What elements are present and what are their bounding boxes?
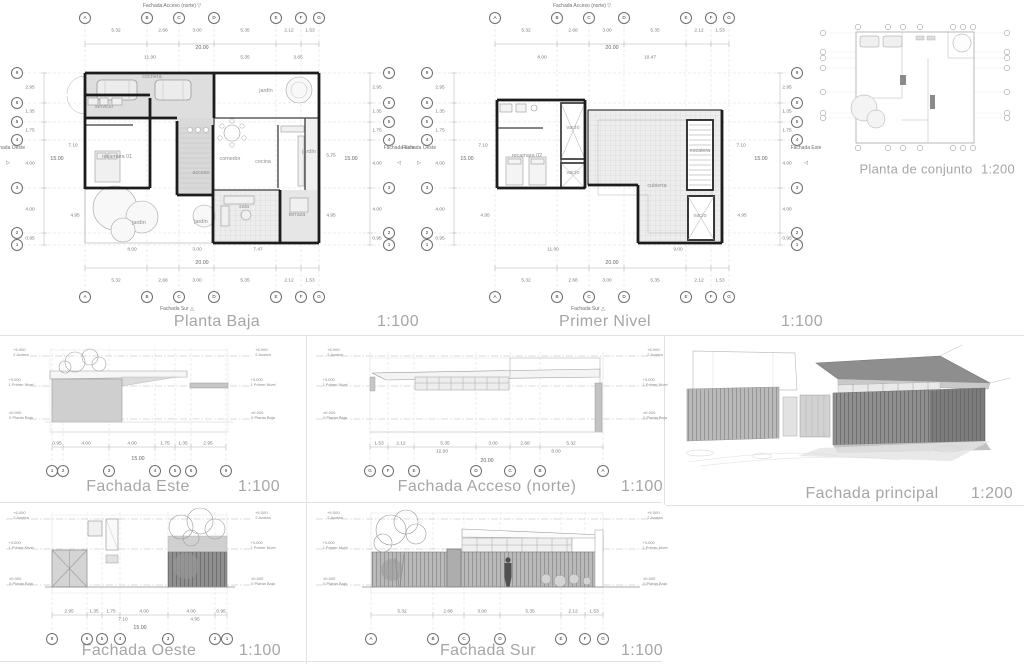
level-name: 1 Primer Nivel — [250, 382, 275, 387]
dimension-label: 1.35 — [178, 442, 187, 447]
grid-bubble: C — [504, 465, 516, 477]
dimension-label: 2.68 — [520, 442, 529, 447]
fachada-principal-render — [686, 345, 1010, 466]
grid-bubble: 1 — [383, 239, 395, 251]
grid-bubble: 5 — [383, 116, 395, 128]
grid-bubble: E — [680, 12, 692, 24]
planta-conjunto-drawing — [820, 24, 1010, 151]
level-label: +6.000 2 Azotea — [647, 510, 663, 520]
dimension-label: 10.47 — [644, 56, 656, 61]
room-label: jardín — [259, 88, 273, 94]
grid-bubble: F — [382, 465, 394, 477]
dimension-label: 4.95 — [190, 618, 199, 623]
level-name: 2 Azotea — [647, 352, 663, 357]
grid-bubble: F — [705, 12, 717, 24]
dimension-label: 8.00 — [551, 450, 560, 455]
level-name: 2 Azotea — [255, 515, 271, 520]
grid-bubble: C — [173, 291, 185, 303]
grid-bubble: A — [489, 291, 501, 303]
grid-bubble: 2 — [791, 227, 803, 239]
level-label: +6.000 2 Azotea — [255, 347, 271, 357]
dimension-label: 1.53 — [305, 279, 314, 284]
level-label: +3.000 1 Primer Nivel — [322, 540, 347, 550]
grid-bubble: 5 — [11, 116, 23, 128]
dimension-label: 3.00 — [602, 29, 611, 34]
level-name: 2 Azotea — [255, 352, 271, 357]
dimension-label: 5.35 — [650, 29, 659, 34]
dimension-label: 5.35 — [650, 279, 659, 284]
planta-conjunto-scale: 1:200 — [981, 162, 1015, 177]
dimension-label: 1.53 — [715, 279, 724, 284]
planta-baja-title: Planta Baja — [174, 313, 260, 331]
level-label: +3.000 1 Primer Nivel — [642, 377, 667, 387]
grid-bubble: 6 — [11, 97, 23, 109]
grid-bubble: C — [173, 12, 185, 24]
dimension-total-label: 15.00 — [133, 625, 146, 631]
dining-table — [224, 125, 240, 141]
dimension-label: 5.35 — [240, 29, 249, 34]
dimension-label: 5.35 — [240, 279, 249, 284]
grid-bubble: D — [470, 465, 482, 477]
level-label: +6.000 2 Azotea — [13, 347, 29, 357]
grid-bubble: 2 — [383, 227, 395, 239]
dimension-total-label: 15.00 — [131, 456, 144, 462]
dimension-label: 4.00 — [435, 208, 444, 213]
facade-marker-vertical: Fachada Este — [791, 145, 822, 151]
dimension-label: 4.95 — [737, 214, 746, 219]
dimension-label: 7.10 — [736, 144, 745, 149]
level-name: 1 Primer Nivel — [642, 382, 667, 387]
dimension-label: 0.95 — [435, 237, 444, 242]
dimension-label: 7.10 — [68, 144, 77, 149]
dimension-total-label: 20.00 — [195, 260, 208, 266]
room-label: jardín — [302, 149, 316, 155]
fachada-sur-scale: 1:100 — [621, 642, 663, 660]
grid-bubble: G — [723, 12, 735, 24]
dimension-label: 1.53 — [305, 29, 314, 34]
facade-marker: Fachada Sur △ — [571, 306, 605, 312]
grid-bubble: A — [365, 633, 377, 645]
dimension-label: 1.75 — [25, 129, 34, 134]
planta-conjunto-title: Planta de conjunto — [859, 162, 972, 177]
dimension-label: 5.32 — [521, 29, 530, 34]
dimension-label: 1.75 — [435, 129, 444, 134]
dimension-label: 3.00 — [192, 248, 201, 253]
dimension-label: 3.65 — [293, 56, 302, 61]
dimension-label: 3.00 — [192, 279, 201, 284]
grid-bubble: B — [141, 12, 153, 24]
grid-bubble: G — [364, 465, 376, 477]
dimension-label: 1.53 — [374, 442, 383, 447]
grid-bubble: B — [551, 12, 563, 24]
facade-marker: ▷ — [6, 160, 10, 166]
grid-bubble: F — [579, 633, 591, 645]
dimension-label: 0.95 — [25, 237, 34, 242]
dimension-label: 4.00 — [372, 208, 381, 213]
fachada-este-scale: 1:100 — [238, 478, 280, 496]
level-label: ±0.000 0 Planta Baja — [9, 410, 33, 420]
dimension-total-label: 20.00 — [605, 45, 618, 51]
grid-bubble: G — [597, 633, 609, 645]
dimension-label: 2.68 — [158, 279, 167, 284]
room-label: escalera — [690, 148, 710, 154]
grid-bubble: 5 — [169, 465, 181, 477]
grid-bubble: B — [534, 465, 546, 477]
level-label: +3.000 1 Primer Nivel — [250, 540, 275, 550]
grid-bubble: 5 — [96, 633, 108, 645]
dimension-label: 1.75 — [106, 610, 115, 615]
room-label: acceso — [192, 170, 209, 176]
dimension-label: 2.12 — [284, 29, 293, 34]
dimension-label: 4.95 — [326, 214, 335, 219]
dimension-label: 1.75 — [782, 129, 791, 134]
dimension-total-label: 20.00 — [480, 458, 493, 464]
fachada-oeste-drawing — [45, 508, 235, 593]
dimension-label: 4.00 — [81, 442, 90, 447]
grid-bubble: 3 — [383, 182, 395, 194]
dimension-label: 4.95 — [480, 214, 489, 219]
room-label: jardín — [194, 219, 208, 225]
dimension-total-label: 15.00 — [460, 156, 473, 162]
dimension-label: 2.68 — [568, 29, 577, 34]
room-label: comedor — [220, 156, 241, 162]
grid-bubble: 4 — [149, 465, 161, 477]
fachada-principal-scale: 1:200 — [971, 485, 1013, 503]
fachada-este-drawing — [45, 349, 233, 432]
person — [505, 557, 510, 562]
level-label: ±0.000 0 Planta Baja — [643, 410, 667, 420]
dimension-label: 4.00 — [782, 208, 791, 213]
dimension-label: 2.12 — [694, 29, 703, 34]
level-label: +6.000 2 Azotea — [647, 347, 663, 357]
dimension-label: 9.00 — [673, 248, 682, 253]
linework-layer — [0, 0, 1024, 664]
grid-bubble: E — [408, 465, 420, 477]
fence — [372, 552, 602, 587]
level-name: 0 Planta Baja — [323, 581, 347, 586]
level-label: +3.000 1 Primer Nivel — [322, 377, 347, 387]
room-label: cubierta — [647, 183, 666, 189]
dimension-label: 1.35 — [25, 110, 34, 115]
level-name: 2 Azotea — [13, 352, 29, 357]
grid-bubble: 9 — [46, 633, 58, 645]
grid-bubble: 6 — [81, 633, 93, 645]
dimension-label: 4.95 — [70, 214, 79, 219]
room-label: vacío — [567, 125, 580, 131]
room-label: terraza — [289, 212, 306, 218]
level-label: +6.000 2 Azotea — [13, 510, 29, 520]
dimension-label: 5.32 — [521, 279, 530, 284]
level-name: 0 Planta Baja — [643, 415, 667, 420]
grid-bubble: G — [313, 12, 325, 24]
grid-bubble: 3 — [11, 182, 23, 194]
dimension-label: 8.00 — [537, 56, 546, 61]
facade-marker: Fachada Sur △ — [160, 306, 194, 312]
level-name: 1 Primer Nivel — [8, 382, 33, 387]
grid-bubble: 6 — [421, 97, 433, 109]
dimension-label: 4.00 — [372, 162, 381, 167]
grid-bubble: 6 — [383, 97, 395, 109]
grid-bubble: 9 — [11, 67, 23, 79]
room-label: servicio — [95, 104, 113, 110]
fachada-acceso-title: Fachada Acceso (norte) — [398, 478, 577, 496]
room-label: recamara 01 — [102, 154, 132, 160]
level-name: 1 Primer Nivel — [250, 545, 275, 550]
room-label: cochera — [142, 74, 161, 80]
level-label: ±0.000 0 Planta Baja — [251, 410, 275, 420]
grid-bubble: C — [458, 633, 470, 645]
grid-bubble: 1 — [421, 239, 433, 251]
grid-bubble: D — [618, 291, 630, 303]
grid-bubble: F — [295, 12, 307, 24]
facade-marker: ◁ — [804, 160, 808, 166]
grid-bubble: E — [270, 291, 282, 303]
dimension-label: 4.00 — [186, 610, 195, 615]
architectural-drawing-sheet: Planta Baja 1:100 Primer Nivel 1:100 Pla… — [0, 0, 1024, 664]
level-name: 1 Primer Nivel — [322, 545, 347, 550]
room-label: recamara 02 — [512, 153, 542, 159]
grid-bubble: D — [494, 633, 506, 645]
dimension-label: 1.53 — [589, 610, 598, 615]
dimension-label: 1.35 — [435, 110, 444, 115]
room-label: jardín — [132, 220, 146, 226]
dimension-label: 1.53 — [715, 29, 724, 34]
grid-bubble: 9 — [383, 67, 395, 79]
level-label: +6.000 2 Azotea — [255, 510, 271, 520]
primer-nivel-title: Primer Nivel — [559, 313, 651, 331]
dimension-total-label: 15.00 — [754, 156, 767, 162]
dimension-label: 2.12 — [694, 279, 703, 284]
dimension-label: 2.12 — [396, 442, 405, 447]
grid-bubble: F — [295, 291, 307, 303]
level-name: 0 Planta Baja — [251, 415, 275, 420]
level-name: 2 Azotea — [327, 515, 343, 520]
level-label: +6.000 2 Azotea — [327, 347, 343, 357]
tree — [59, 349, 106, 373]
grid-bubble: 3 — [162, 633, 174, 645]
dimension-label: 2.95 — [435, 86, 444, 91]
room-label: vacío — [567, 170, 580, 176]
fachada-principal-title: Fachada principal — [805, 485, 938, 503]
fachada-este-title: Fachada Este — [86, 478, 190, 496]
grid-bubble: F — [705, 291, 717, 303]
grid-bubble: D — [208, 291, 220, 303]
grid-bubble: 1 — [221, 633, 233, 645]
dimension-label: 0.95 — [216, 610, 225, 615]
dimension-label: 5.32 — [111, 279, 120, 284]
dimension-label: 2.68 — [158, 29, 167, 34]
dimension-label: 2.95 — [782, 86, 791, 91]
grid-bubble: 3 — [421, 182, 433, 194]
grid-bubble: 5 — [791, 116, 803, 128]
dimension-label: 5.35 — [525, 610, 534, 615]
grid-bubble: 1 — [11, 239, 23, 251]
fachada-oeste-title: Fachada Oeste — [82, 642, 197, 660]
dimension-label: 2.12 — [284, 279, 293, 284]
dimension-label: 2.95 — [372, 86, 381, 91]
grid-bubble: B — [427, 633, 439, 645]
dimension-label: 4.00 — [25, 208, 34, 213]
facade-marker: ◁ — [397, 160, 401, 166]
dimension-label: 4.00 — [782, 162, 791, 167]
dimension-label: 0.95 — [52, 442, 61, 447]
dimension-label: 5.32 — [111, 29, 120, 34]
dimension-label: 1.35 — [782, 110, 791, 115]
grid-bubble: D — [208, 12, 220, 24]
grid-bubble: 1 — [791, 239, 803, 251]
fachada-sur-drawing — [362, 510, 640, 593]
room-label: cocina — [255, 159, 271, 165]
grid-bubble: 3 — [103, 465, 115, 477]
dimension-label: 2.68 — [568, 279, 577, 284]
level-name: 2 Azotea — [13, 515, 29, 520]
grid-bubble: 5 — [421, 116, 433, 128]
grid-bubble: A — [489, 12, 501, 24]
level-label: ±0.000 0 Planta Baja — [251, 576, 275, 586]
grid-bubble: B — [141, 291, 153, 303]
dimension-label: 7.47 — [253, 248, 262, 253]
level-label: +3.000 1 Primer Nivel — [642, 540, 667, 550]
dimension-label: 5.75 — [326, 154, 335, 159]
level-name: 0 Planta Baja — [323, 415, 347, 420]
grid-bubble: 2 — [421, 227, 433, 239]
level-label: +3.000 1 Primer Nivel — [8, 377, 33, 387]
facade-marker: Fachada Acceso (norte) ▽ — [553, 3, 611, 9]
tree — [374, 510, 426, 552]
room-label: sala — [239, 204, 249, 210]
dimension-label: 2.68 — [443, 610, 452, 615]
dimension-label: 11.00 — [547, 248, 559, 253]
grid-bubble: E — [555, 633, 567, 645]
dimension-label: 2.95 — [203, 442, 212, 447]
dimension-total-label: 20.00 — [195, 45, 208, 51]
grid-bubble: A — [597, 465, 609, 477]
grid-bubble: D — [618, 12, 630, 24]
grid-bubble: C — [583, 291, 595, 303]
grid-bubble: A — [79, 291, 91, 303]
grid-bubble: 2 — [209, 633, 221, 645]
dimension-label: 2.12 — [568, 610, 577, 615]
dimension-label: 1.75 — [372, 129, 381, 134]
dimension-label: 4.00 — [139, 610, 148, 615]
grid-bubble: G — [723, 291, 735, 303]
level-label: ±0.000 0 Planta Baja — [323, 576, 347, 586]
facade-marker-vertical: Fachada Oeste — [402, 145, 436, 151]
dimension-label: 4.00 — [435, 162, 444, 167]
dimension-label: 11.00 — [144, 56, 156, 61]
dimension-label: 12.00 — [436, 450, 448, 455]
dimension-label: 0.95 — [782, 237, 791, 242]
dimension-label: 3.00 — [488, 442, 497, 447]
level-name: 0 Planta Baja — [9, 415, 33, 420]
grid-bubble: 9 — [220, 465, 232, 477]
level-name: 0 Planta Baja — [9, 581, 33, 586]
dimension-label: 4.00 — [25, 162, 34, 167]
fachada-oeste-scale: 1:100 — [239, 642, 281, 660]
facade-marker: ▷ — [417, 160, 421, 166]
level-name: 0 Planta Baja — [643, 581, 667, 586]
grid-bubble: 6 — [791, 97, 803, 109]
planta-baja-scale: 1:100 — [377, 313, 419, 331]
grid-bubble: 3 — [791, 182, 803, 194]
dimension-label: 5.35 — [240, 56, 249, 61]
grid-bubble: G — [313, 291, 325, 303]
level-label: ±0.000 0 Planta Baja — [9, 576, 33, 586]
gate — [447, 549, 461, 587]
dimension-label: 7.10 — [478, 144, 487, 149]
grid-bubble: E — [270, 12, 282, 24]
dimension-label: 2.95 — [25, 86, 34, 91]
grid-bubble: B — [551, 291, 563, 303]
facade-marker: Fachada Acceso (norte) ▽ — [143, 3, 201, 9]
dimension-label: 3.00 — [602, 279, 611, 284]
dimension-label: 0.95 — [372, 237, 381, 242]
dimension-total-label: 15.00 — [50, 156, 63, 162]
level-name: 1 Primer Nivel — [8, 545, 33, 550]
dimension-label: 1.35 — [372, 110, 381, 115]
fachada-acceso-scale: 1:100 — [621, 478, 663, 496]
grid-bubble: 2 — [57, 465, 69, 477]
primer-nivel-scale: 1:100 — [781, 313, 823, 331]
level-name: 2 Azotea — [327, 352, 343, 357]
grid-bubble: E — [680, 291, 692, 303]
grid-bubble: C — [583, 12, 595, 24]
grid-bubble: 6 — [185, 465, 197, 477]
dimension-label: 5.32 — [566, 442, 575, 447]
level-name: 2 Azotea — [647, 515, 663, 520]
dimension-label: 2.95 — [64, 610, 73, 615]
level-label: ±0.000 0 Planta Baja — [643, 576, 667, 586]
fachada-sur-title: Fachada Sur — [440, 642, 536, 660]
level-name: 1 Primer Nivel — [642, 545, 667, 550]
grid-bubble: A — [79, 12, 91, 24]
dimension-total-label: 20.00 — [605, 260, 618, 266]
primer-nivel-drawing — [497, 100, 722, 243]
dimension-label: 5.35 — [440, 442, 449, 447]
level-label: +3.000 1 Primer Nivel — [8, 540, 33, 550]
dimension-label: 5.32 — [397, 610, 406, 615]
grid-bubble: 4 — [114, 633, 126, 645]
dimension-label: 1.75 — [160, 442, 169, 447]
level-label: ±0.000 0 Planta Baja — [323, 410, 347, 420]
dimension-label: 8.00 — [127, 248, 136, 253]
grid-bubble: 2 — [11, 227, 23, 239]
room-label: vacío — [694, 213, 707, 219]
grid-bubble: 9 — [791, 67, 803, 79]
dimension-label: 4.00 — [127, 442, 136, 447]
grid-bubble: 9 — [421, 67, 433, 79]
dimension-total-label: 15.00 — [344, 156, 357, 162]
level-label: +3.000 1 Primer Nivel — [250, 377, 275, 387]
dimension-label: 3.00 — [192, 29, 201, 34]
dimension-label: 7.10 — [118, 618, 127, 623]
level-label: +6.000 2 Azotea — [327, 510, 343, 520]
dimension-label: 1.35 — [89, 610, 98, 615]
level-name: 0 Planta Baja — [251, 581, 275, 586]
dimension-label: 3.00 — [477, 610, 486, 615]
facade-marker-vertical: Fachada Oeste — [0, 145, 25, 151]
fachada-acceso-drawing — [370, 358, 603, 432]
level-name: 1 Primer Nivel — [322, 382, 347, 387]
